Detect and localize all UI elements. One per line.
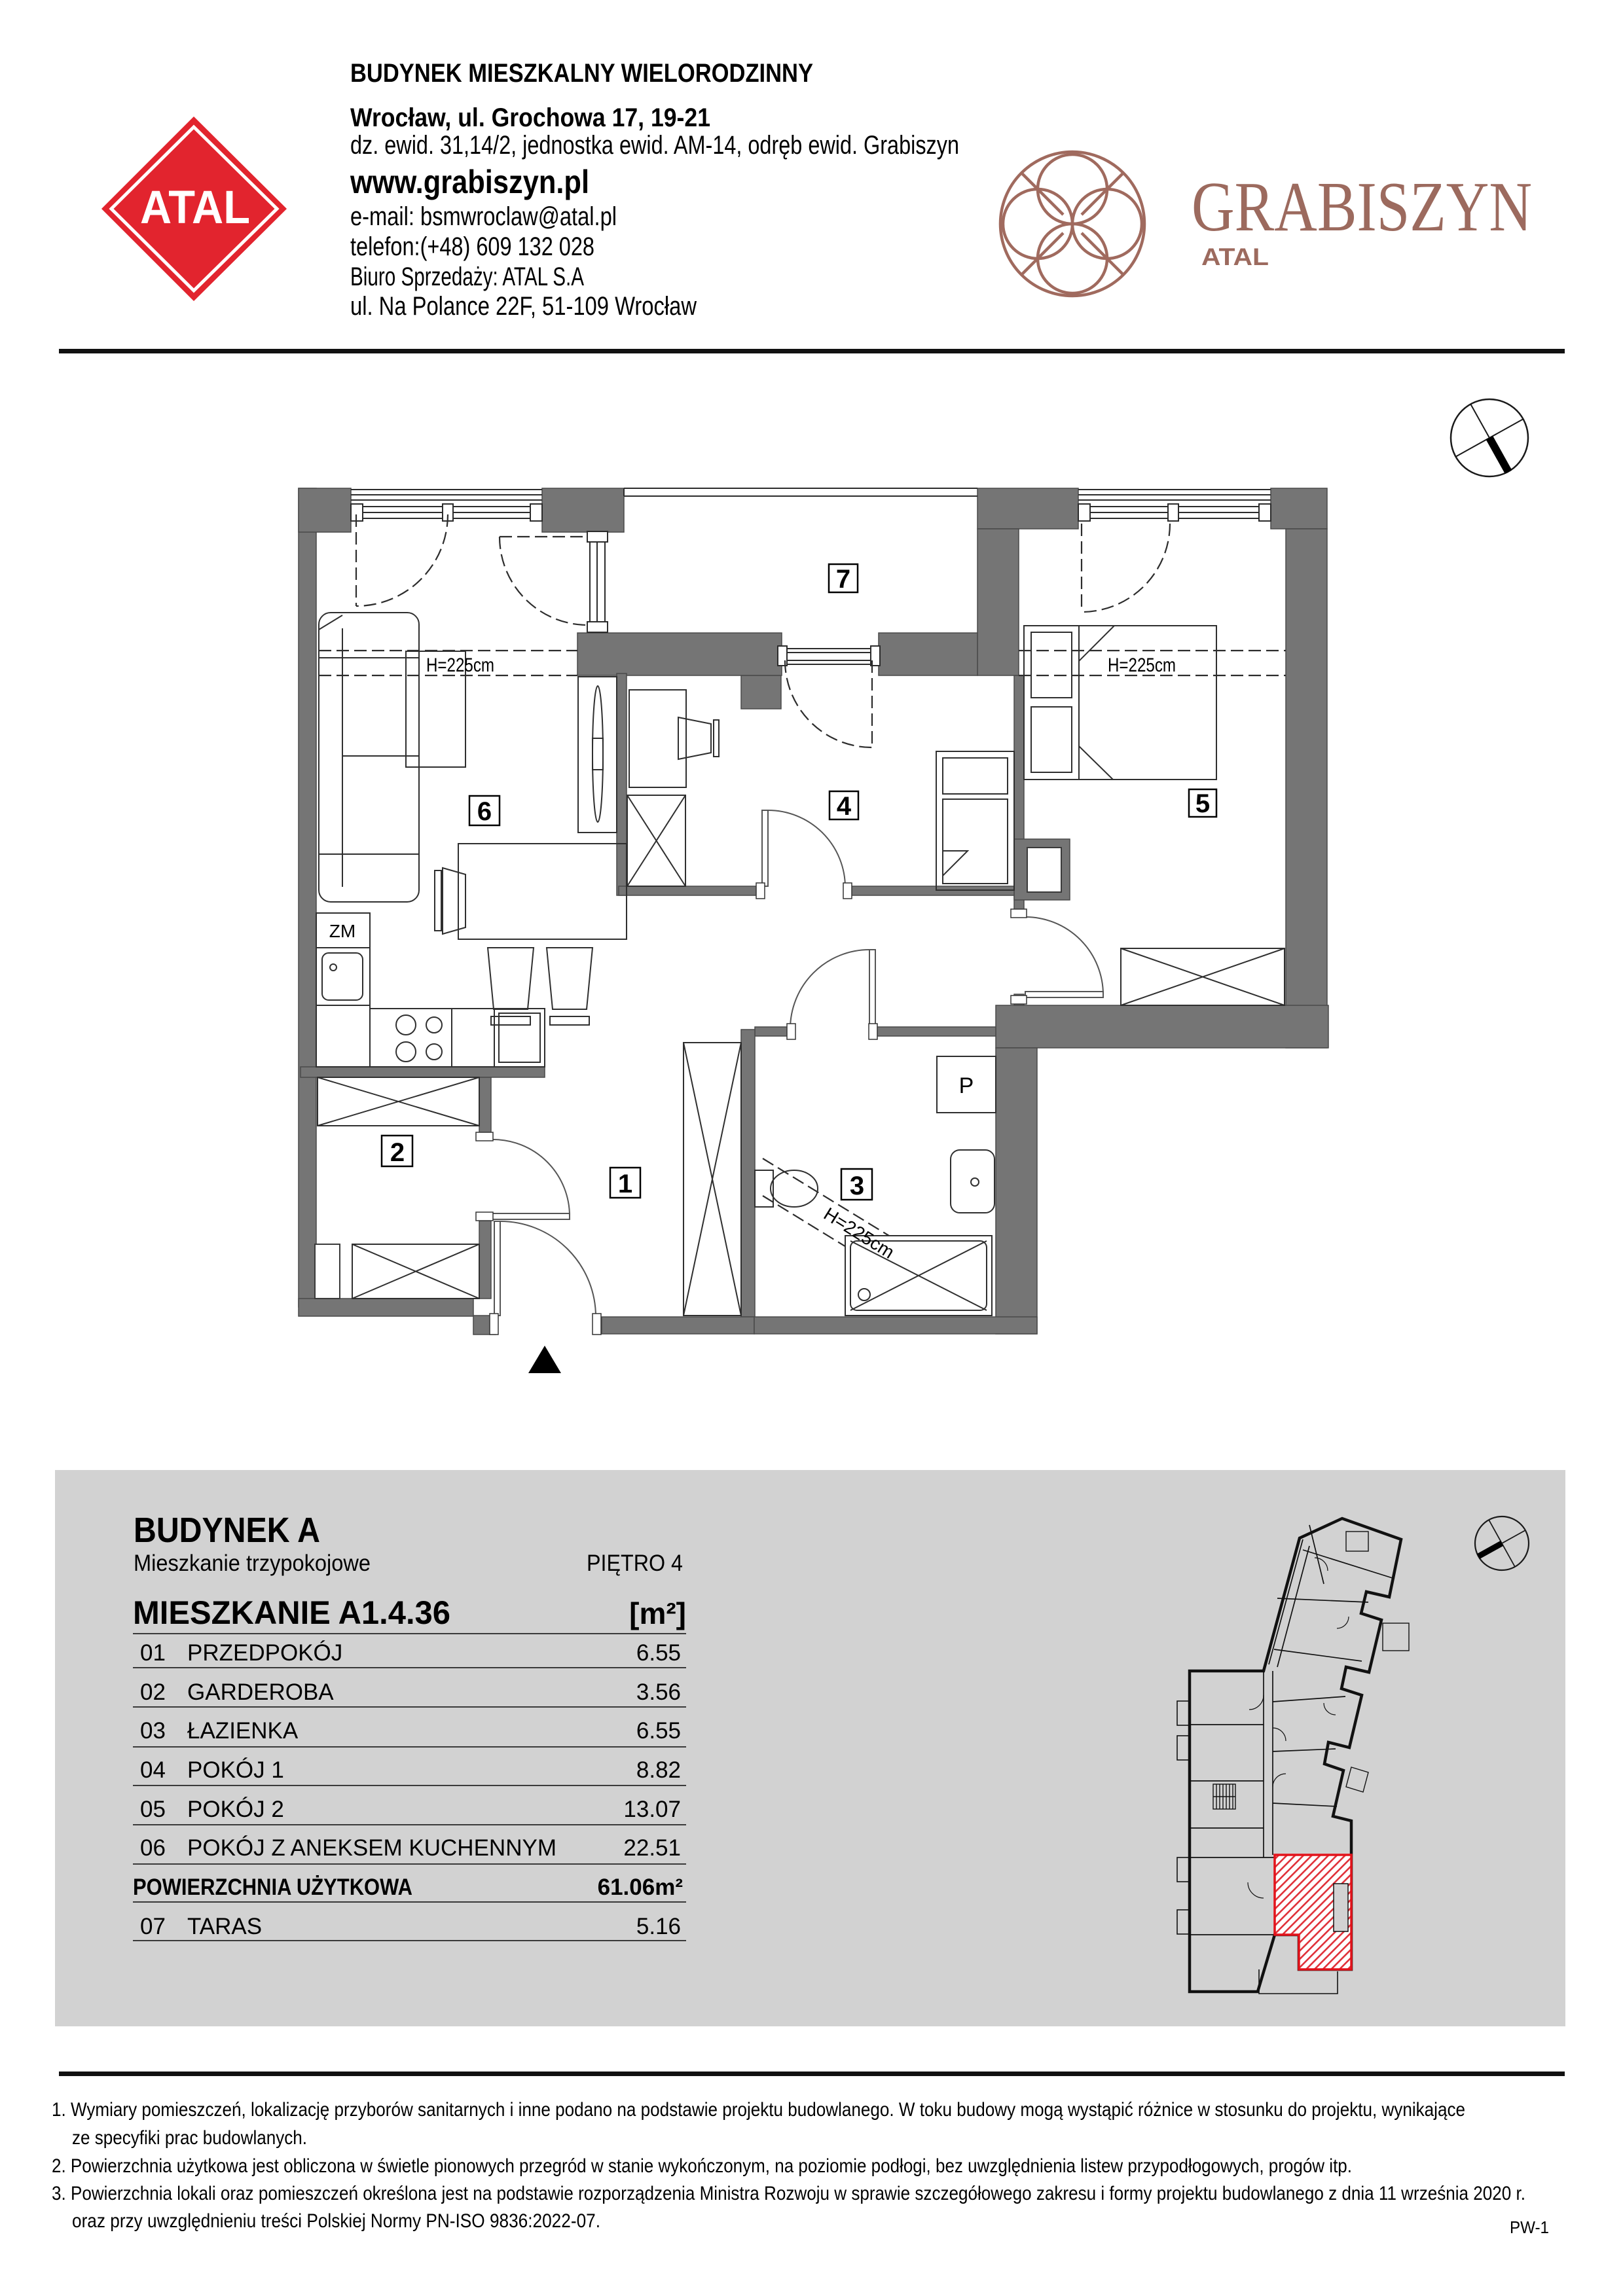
svg-text:22.51: 22.51 xyxy=(623,1835,681,1861)
svg-text:POKÓJ 1: POKÓJ 1 xyxy=(187,1757,284,1783)
svg-text:Wrocław, ul. Grochowa 17, 19-2: Wrocław, ul. Grochowa 17, 19-21 xyxy=(350,103,710,132)
svg-text:TARAS: TARAS xyxy=(187,1914,262,1939)
svg-text:2: 2 xyxy=(390,1138,405,1167)
svg-text:GARDEROBA: GARDEROBA xyxy=(187,1679,334,1705)
svg-text:GRABISZYN: GRABISZYN xyxy=(1192,168,1532,246)
svg-text:telefon:(+48) 609 132 028: telefon:(+48) 609 132 028 xyxy=(350,232,594,261)
svg-text:6.55: 6.55 xyxy=(636,1718,681,1744)
svg-text:PIĘTRO 4: PIĘTRO 4 xyxy=(587,1551,683,1576)
svg-text:P: P xyxy=(959,1073,974,1098)
svg-text:POWIERZCHNIA UŻYTKOWA: POWIERZCHNIA UŻYTKOWA xyxy=(133,1874,412,1900)
svg-text:06: 06 xyxy=(140,1835,166,1861)
svg-text:5.16: 5.16 xyxy=(636,1914,681,1939)
svg-text:3.56: 3.56 xyxy=(636,1679,681,1705)
svg-text:ATAL: ATAL xyxy=(1201,243,1269,270)
svg-text:02: 02 xyxy=(140,1679,166,1705)
svg-text:3. Powierzchnia lokali oraz po: 3. Powierzchnia lokali oraz pomieszczeń … xyxy=(52,2183,1525,2204)
svg-text:www.grabiszyn.pl: www.grabiszyn.pl xyxy=(350,164,589,200)
svg-text:H=225cm: H=225cm xyxy=(426,655,494,676)
svg-text:1. Wymiary pomieszczeń, lokali: 1. Wymiary pomieszczeń, lokalizację przy… xyxy=(52,2099,1465,2121)
svg-text:[m²]: [m²] xyxy=(629,1596,686,1630)
svg-text:POKÓJ 2: POKÓJ 2 xyxy=(187,1797,284,1822)
svg-text:05: 05 xyxy=(140,1797,166,1822)
svg-text:8.82: 8.82 xyxy=(636,1757,681,1783)
svg-text:ul. Na Polance 22F, 51-109 Wro: ul. Na Polance 22F, 51-109 Wrocław xyxy=(350,292,697,321)
svg-text:61.06m²: 61.06m² xyxy=(598,1874,683,1900)
svg-text:ze specyfiki prac budowlanych.: ze specyfiki prac budowlanych. xyxy=(72,2127,307,2149)
svg-text:3: 3 xyxy=(850,1172,864,1200)
svg-text:MIESZKANIE A1.4.36: MIESZKANIE A1.4.36 xyxy=(133,1594,450,1631)
svg-text:POKÓJ Z ANEKSEM KUCHENNYM: POKÓJ Z ANEKSEM KUCHENNYM xyxy=(187,1835,556,1861)
svg-text:5: 5 xyxy=(1195,789,1210,818)
svg-text:ATAL: ATAL xyxy=(140,182,250,234)
svg-text:Mieszkanie trzypokojowe: Mieszkanie trzypokojowe xyxy=(134,1551,371,1576)
svg-text:7: 7 xyxy=(836,565,850,594)
svg-text:Biuro Sprzedaży: ATAL S.A: Biuro Sprzedaży: ATAL S.A xyxy=(350,262,584,291)
svg-text:13.07: 13.07 xyxy=(623,1797,681,1822)
svg-text:01: 01 xyxy=(140,1640,166,1666)
svg-text:dz. ewid. 31,14/2, jednostka e: dz. ewid. 31,14/2, jednostka ewid. AM-14… xyxy=(350,131,959,160)
svg-text:H=225cm: H=225cm xyxy=(1108,655,1176,676)
svg-text:2. Powierzchnia użytkowa jest: 2. Powierzchnia użytkowa jest obliczona … xyxy=(52,2155,1352,2177)
svg-text:03: 03 xyxy=(140,1718,166,1744)
svg-text:ŁAZIENKA: ŁAZIENKA xyxy=(187,1718,299,1744)
svg-text:04: 04 xyxy=(140,1757,166,1783)
svg-text:BUDYNEK MIESZKALNY WIELORODZIN: BUDYNEK MIESZKALNY WIELORODZINNY xyxy=(350,59,813,88)
svg-text:ZM: ZM xyxy=(329,921,356,941)
svg-text:6.55: 6.55 xyxy=(636,1640,681,1666)
svg-text:BUDYNEK A: BUDYNEK A xyxy=(134,1511,320,1550)
svg-text:PW-1: PW-1 xyxy=(1510,2217,1549,2237)
svg-text:07: 07 xyxy=(140,1914,166,1939)
svg-text:e-mail: bsmwroclaw@atal.pl: e-mail: bsmwroclaw@atal.pl xyxy=(350,202,617,231)
svg-text:1: 1 xyxy=(618,1170,632,1198)
svg-text:6: 6 xyxy=(477,797,492,826)
svg-text:4: 4 xyxy=(837,792,852,821)
svg-text:oraz przy uwzględnieniu treści: oraz przy uwzględnieniu treści Polskiej … xyxy=(72,2210,600,2232)
svg-text:PRZEDPOKÓJ: PRZEDPOKÓJ xyxy=(187,1640,342,1666)
